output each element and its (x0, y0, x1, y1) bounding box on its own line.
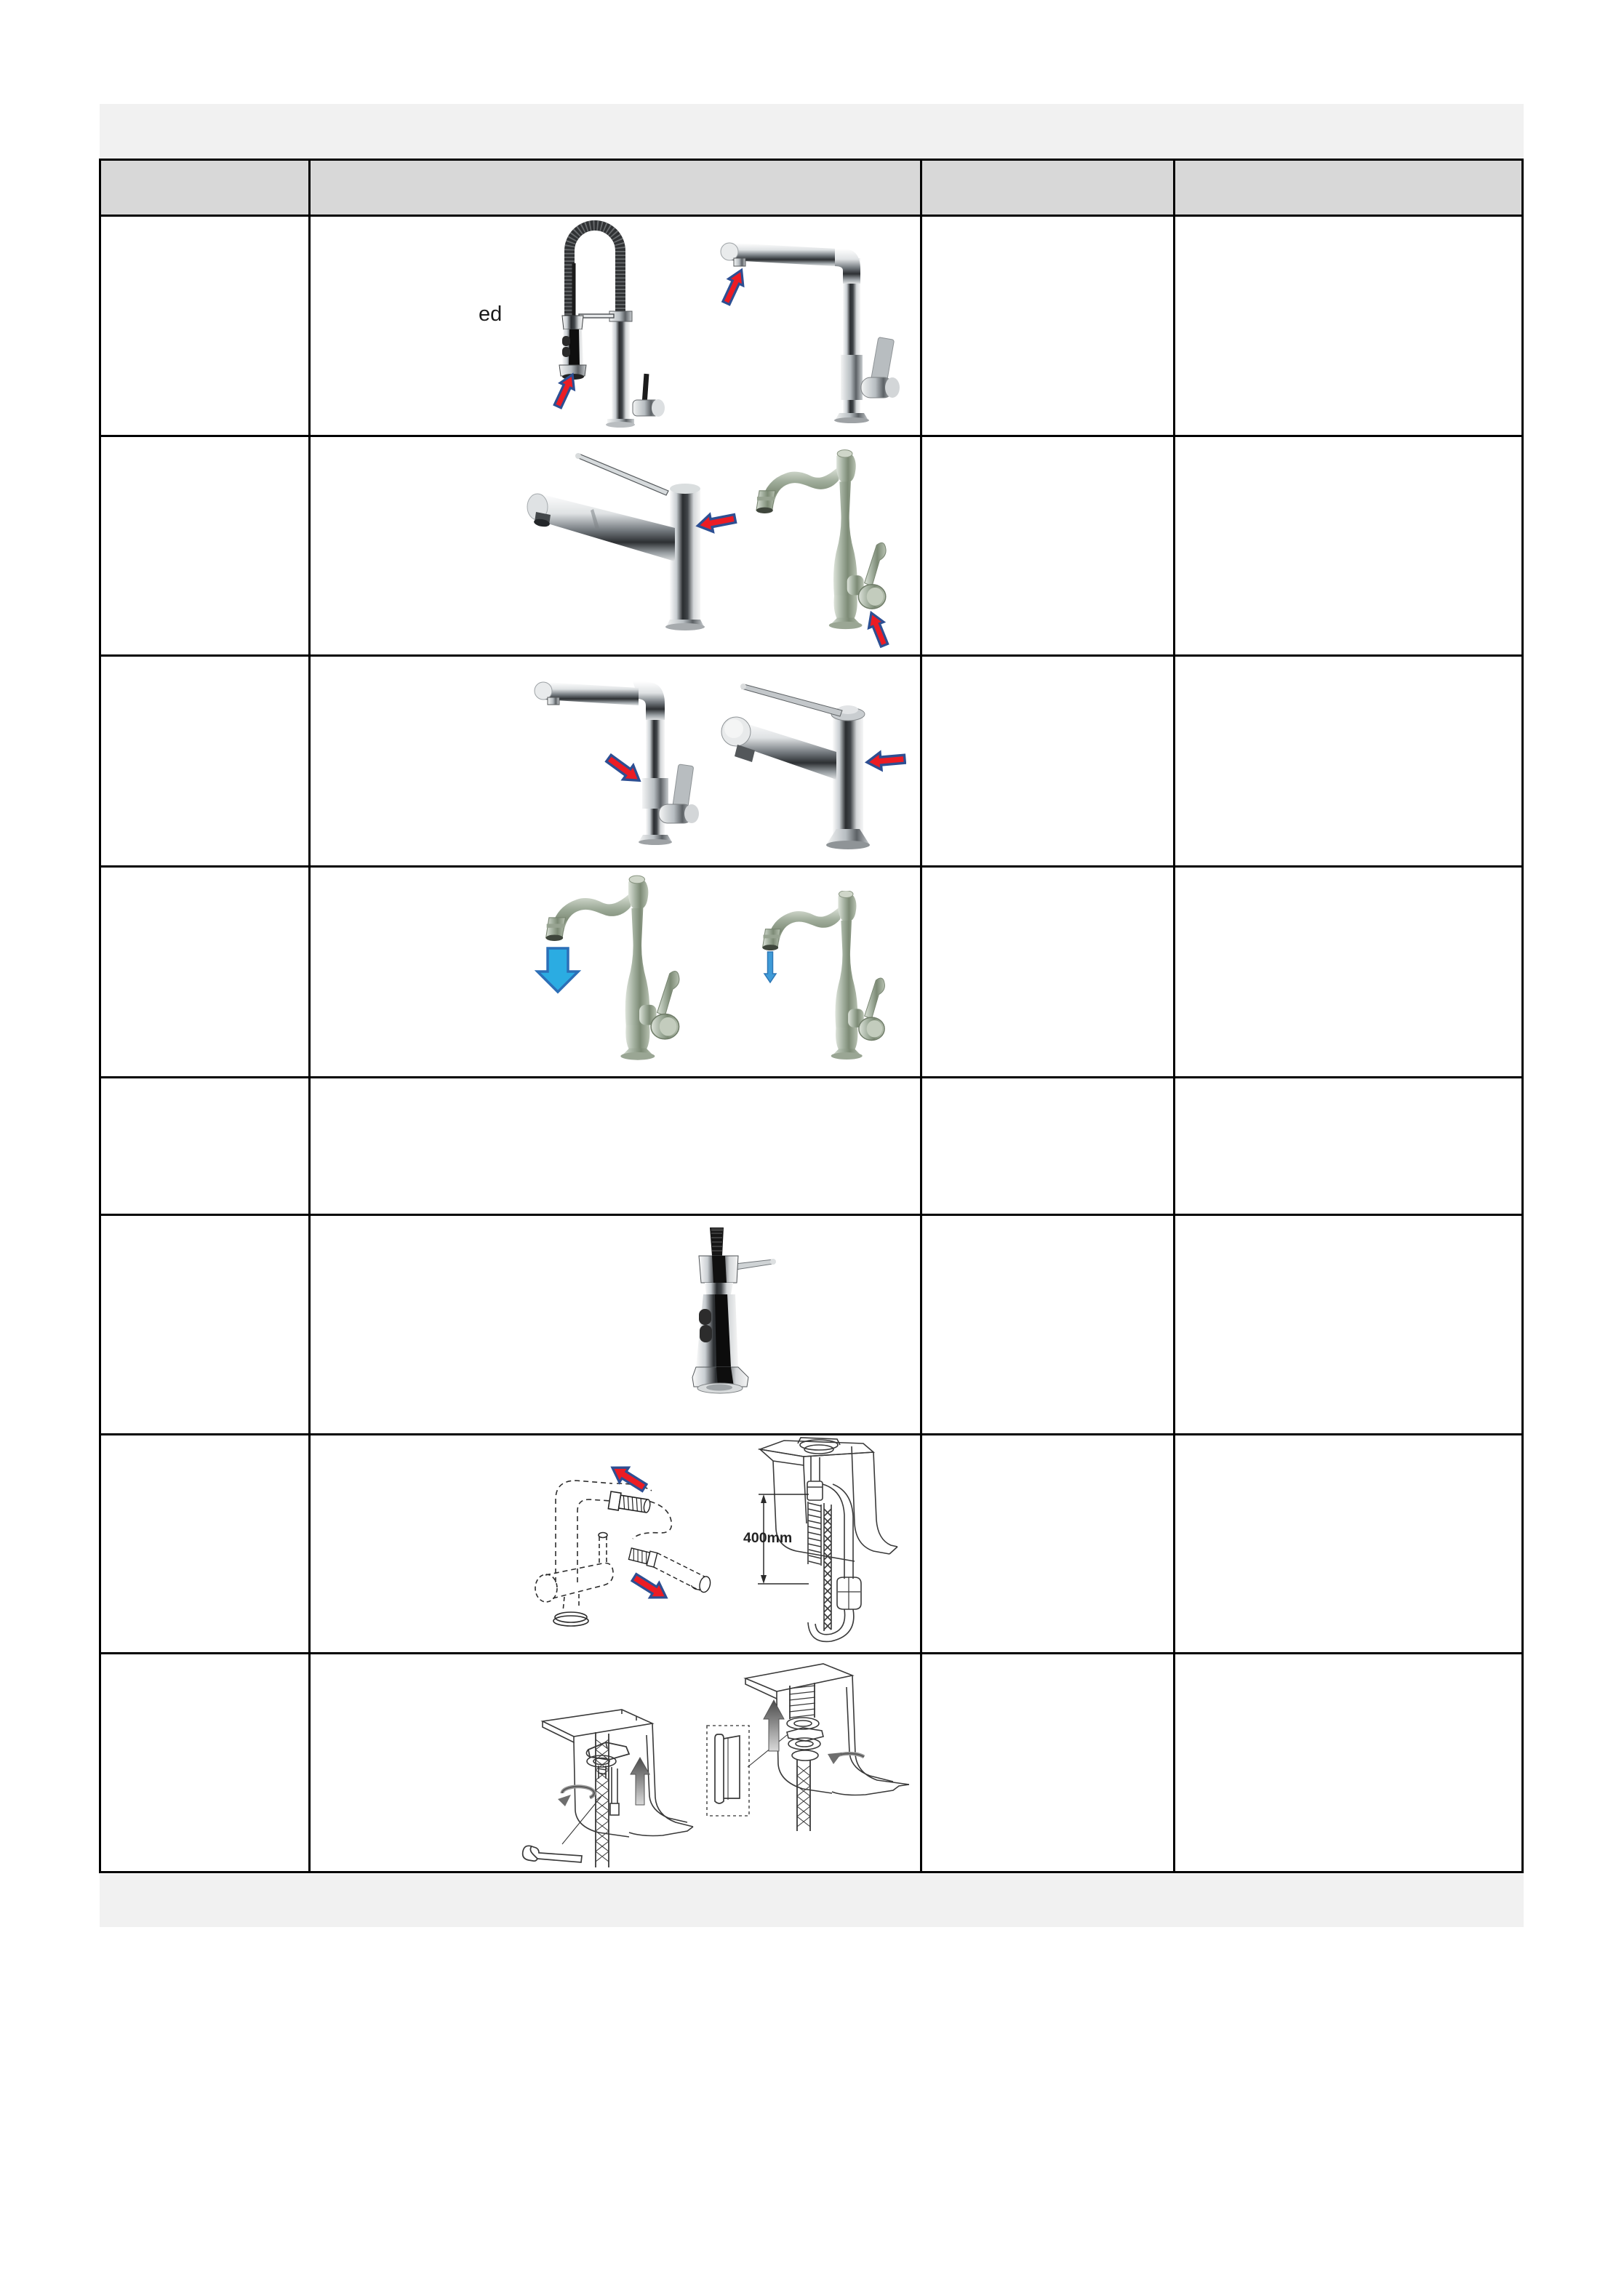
svg-text:400mm: 400mm (743, 1530, 792, 1546)
